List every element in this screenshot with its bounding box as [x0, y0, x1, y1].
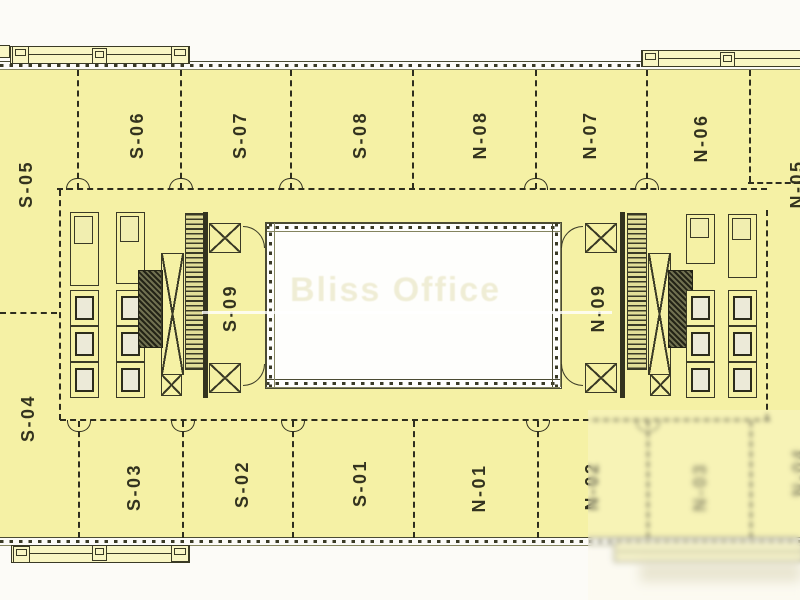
elevator-cell	[116, 362, 145, 398]
unit-separator	[290, 70, 292, 189]
watermark-text: Bliss Office	[290, 271, 501, 310]
shaft-xbox	[650, 374, 671, 396]
floor-plan: Bliss Office	[0, 0, 800, 600]
unit-separator	[78, 421, 80, 538]
elevator-lobby	[686, 214, 715, 264]
core-wall	[203, 212, 208, 398]
unit-label-n-05: N-05	[788, 159, 800, 208]
elevator-cell	[728, 326, 757, 362]
unit-separator	[646, 70, 648, 189]
unit-separator	[749, 70, 751, 182]
unit-separator	[180, 70, 182, 189]
unit-separator	[537, 421, 539, 538]
unit-label-s-03: S-03	[125, 463, 143, 511]
unit-label-s-08: S-08	[351, 111, 369, 159]
balcony-post	[12, 46, 29, 64]
balcony-post	[171, 46, 189, 64]
unit-separator	[535, 70, 537, 189]
elevator-cell	[70, 326, 99, 362]
balcony-post	[642, 50, 659, 67]
unit-separator	[413, 421, 415, 538]
balcony-post	[720, 52, 735, 67]
service-shaft-strip	[185, 213, 205, 370]
core-edge-dashed-right	[766, 210, 768, 420]
unit-label-n-01: N-01	[470, 463, 488, 512]
atrium: Bliss Office	[265, 222, 562, 389]
elevator-cell	[686, 362, 715, 398]
unit-label-n-07: N-07	[581, 110, 599, 159]
core-wall	[620, 212, 625, 398]
unit-separator	[292, 421, 294, 538]
elevator-cell	[728, 290, 757, 326]
unit-label-s-04: S-04	[19, 394, 37, 442]
elevator-lobby	[728, 214, 757, 278]
scissor-stair	[161, 253, 184, 375]
elevator-cell	[70, 362, 99, 398]
balcony-post	[171, 545, 189, 562]
unit-label-s-02: S-02	[233, 460, 251, 508]
unit-separator	[412, 70, 414, 189]
service-shaft-strip	[627, 213, 647, 370]
scan-line-artifact	[202, 311, 612, 314]
core-edge-dashed-left	[59, 190, 61, 420]
shaft-xbox	[585, 223, 617, 253]
balcony-post	[13, 546, 30, 563]
shaft-xbox	[585, 363, 617, 393]
blur-artifact-zone	[588, 410, 800, 600]
balcony-post	[92, 545, 107, 561]
elevator-cell	[728, 362, 757, 398]
corridor-label-s-09: S-09	[221, 284, 239, 332]
unit-separator	[0, 312, 57, 314]
machine-room-hatch	[138, 270, 163, 348]
balcony-post-cut	[0, 45, 10, 58]
elevator-lobby	[70, 212, 99, 286]
elevator-cell	[686, 290, 715, 326]
balcony-post	[92, 48, 107, 64]
unit-label-n-08: N-08	[471, 110, 489, 159]
shaft-xbox	[209, 363, 241, 393]
elevator-cell	[70, 290, 99, 326]
shaft-xbox	[161, 374, 182, 396]
unit-label-s-05: S-05	[17, 160, 35, 208]
unit-label-s-06: S-06	[128, 111, 146, 159]
unit-label-s-01: S-01	[351, 459, 369, 507]
unit-separator	[77, 70, 79, 189]
unit-label-n-06: N-06	[692, 113, 710, 162]
shaft-xbox	[209, 223, 241, 253]
unit-label-s-07: S-07	[231, 111, 249, 159]
unit-separator	[182, 421, 184, 538]
elevator-cell	[686, 326, 715, 362]
corridor-label-n-09: N-09	[589, 283, 607, 332]
